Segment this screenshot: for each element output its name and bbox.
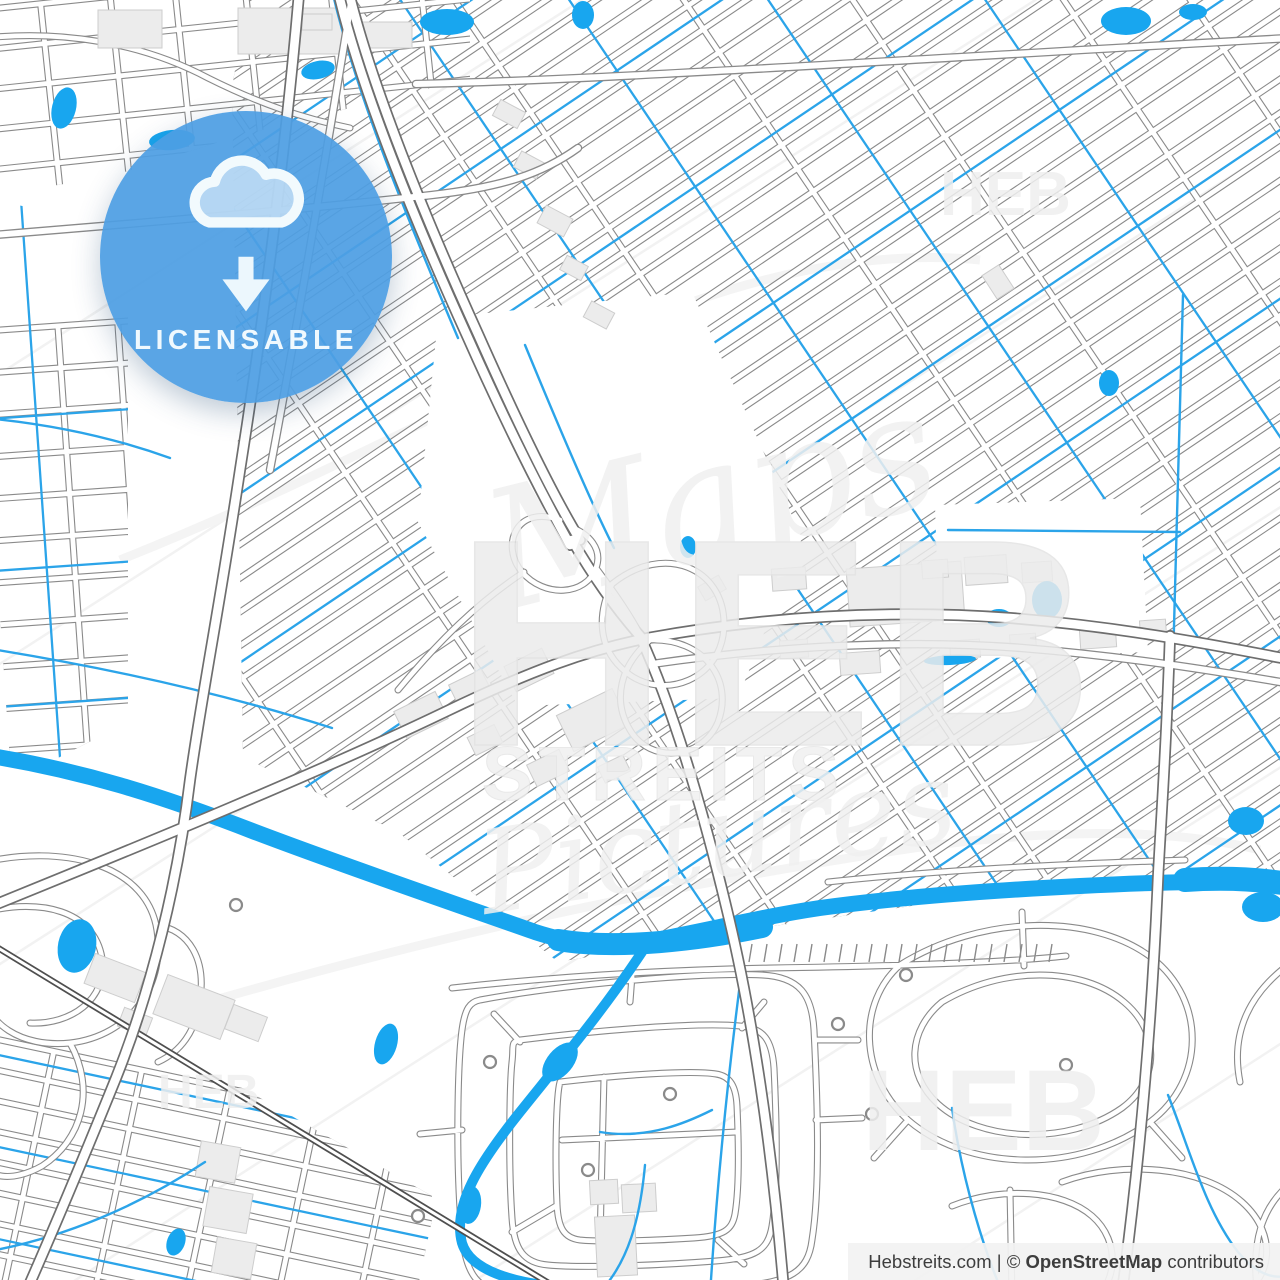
download-arrow-icon [213, 256, 279, 314]
attribution-source: OpenStreetMap [1025, 1251, 1162, 1272]
licensable-badge: LICENSABLE [100, 111, 392, 403]
map-preview: MapsHEBSTREITSPicturesHEBHEBHEB LICENSAB… [0, 0, 1280, 1280]
badge-label: LICENSABLE [100, 324, 392, 356]
watermark: HEB [158, 1066, 259, 1119]
attribution-site: Hebstreits.com | © [868, 1251, 1025, 1272]
cloud-shape [195, 161, 299, 223]
cloud-download-icon [171, 141, 321, 245]
watermark: HEB [940, 160, 1071, 229]
attribution-bar: Hebstreits.com | © OpenStreetMap contrib… [848, 1243, 1280, 1280]
attribution-suffix: contributors [1162, 1251, 1264, 1272]
watermark: HEB [862, 1047, 1105, 1175]
